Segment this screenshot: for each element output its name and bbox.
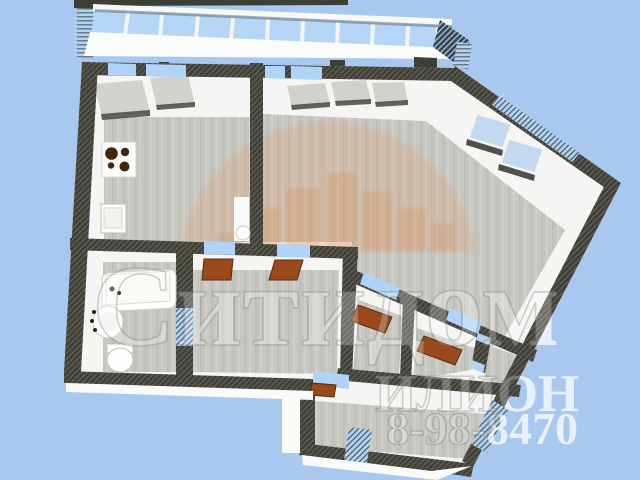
svg-text:Ситидом: Ситидом [92,243,560,371]
